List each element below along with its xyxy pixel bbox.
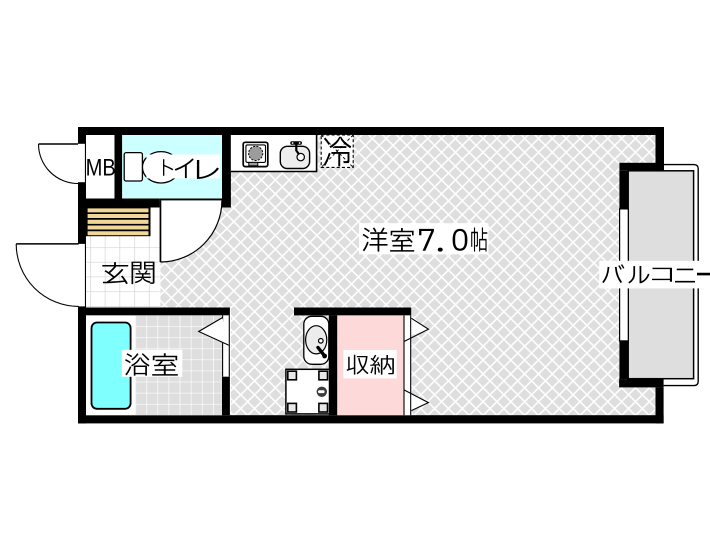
svg-text:MB: MB [86, 154, 116, 181]
